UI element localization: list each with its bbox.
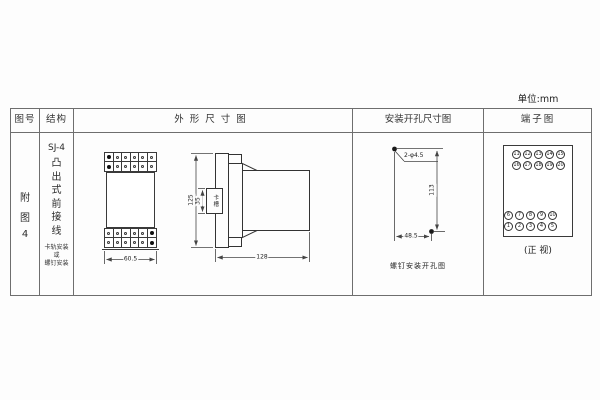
front-terminal-cell [131, 162, 140, 171]
mounting-caption: 螺钉安装开孔图 [353, 261, 483, 271]
terminal-caption: (正 视) [484, 243, 592, 256]
terminal-15: 15 [556, 150, 565, 159]
terminal-screw-dot [141, 241, 144, 244]
front-terminal-cell [148, 229, 157, 238]
front-terminal-cell [122, 153, 131, 162]
terminal-screw-dot [133, 232, 136, 235]
header-fig-no: 图号 [10, 108, 40, 132]
front-terminal-cell [131, 229, 140, 238]
terminal-5: 5 [548, 222, 557, 231]
mounting-note-line: 卡轨安装 [44, 244, 68, 252]
terminal-6: 6 [504, 211, 513, 220]
header-structure: 结构 [40, 108, 73, 132]
unit-label: 单位:mm [484, 91, 592, 106]
front-terminal-cell [114, 162, 123, 171]
front-terminal-cell [148, 153, 157, 162]
terminal-2: 2 [515, 222, 524, 231]
terminal-9: 9 [537, 211, 546, 220]
terminal-screw-dot [141, 156, 144, 159]
header-mounting: 安装开孔尺寸图 [353, 108, 483, 132]
front-terminal-cell [114, 238, 123, 247]
header-terminal: 端子图 [484, 108, 592, 132]
terminal-mark-dot [150, 231, 154, 235]
dim-horizontal-spacing: 48.5 [403, 233, 418, 240]
terminal-screw-dot [124, 241, 127, 244]
header-divider [10, 132, 592, 133]
terminal-screw-dot [133, 156, 136, 159]
terminal-screw-dot [150, 165, 153, 168]
header-outline: 外形尺寸图 [74, 108, 352, 132]
terminal-screw-dot [116, 232, 119, 235]
terminal-14: 14 [545, 150, 554, 159]
structure-char: 凸 [52, 157, 62, 171]
front-terminal-cell [148, 162, 157, 171]
dim-holes-label: 2-φ4.5 [404, 153, 423, 160]
terminal-screw-dot [116, 156, 119, 159]
mounting-note-line: 或 [44, 252, 68, 260]
front-terminal-cell [105, 238, 114, 247]
terminal-screw-dot [124, 232, 127, 235]
terminal-11: 11 [512, 150, 521, 159]
model-label: SJ-4 [48, 143, 65, 153]
terminal-screw-dot [150, 156, 153, 159]
terminal-1: 1 [504, 222, 513, 231]
terminal-mark-dot [107, 155, 111, 159]
fig-no-cell: 附 图 4 [10, 132, 40, 296]
front-terminal-cell [105, 153, 114, 162]
front-terminal-cell [105, 229, 114, 238]
dim-slot-height: 35 [196, 196, 203, 206]
front-terminal-cell [139, 238, 148, 247]
structure-cell: SJ-4 凸 出 式 前 接 线 卡轨安装 或 螺钉安装 [40, 132, 73, 296]
terminal-screw-dot [133, 165, 136, 168]
structure-char: 前 [52, 198, 62, 212]
front-terminal-cell [122, 238, 131, 247]
front-terminal-cell [122, 229, 131, 238]
structure-char: 接 [52, 211, 62, 225]
dim-overall-depth: 128 [255, 254, 268, 261]
structure-char: 线 [52, 225, 62, 239]
front-terminal-cell [131, 238, 140, 247]
terminal-4: 4 [537, 222, 546, 231]
column-divider-4 [483, 108, 484, 296]
front-terminal-cell [139, 162, 148, 171]
terminal-12: 12 [523, 150, 532, 159]
front-view-body [106, 172, 155, 228]
terminal-screw-dot [107, 232, 110, 235]
fig-no-char: 附 [20, 189, 30, 204]
terminal-17: 17 [523, 161, 532, 170]
front-terminal-cell [131, 153, 140, 162]
terminal-18: 18 [534, 161, 543, 170]
terminal-screw-dot [116, 241, 119, 244]
structure-char: 式 [52, 184, 62, 198]
terminal-19: 19 [545, 161, 554, 170]
slot-label: 卡槽 [212, 194, 218, 207]
datasheet-page: 单位:mm 图号 结构 外形尺寸图 安装开孔尺寸图 端子图 附 图 4 SJ-4… [0, 0, 600, 400]
terminal-mark-dot [150, 241, 154, 245]
front-terminal-cell [114, 153, 123, 162]
terminal-3: 3 [526, 222, 535, 231]
terminal-8: 8 [526, 211, 535, 220]
front-terminal-cell [139, 153, 148, 162]
terminal-screw-dot [107, 241, 110, 244]
dim-front-width: 60.5 [123, 256, 138, 263]
terminal-group-top: 11121314151617181920 [512, 150, 568, 171]
terminal-screw-dot [116, 165, 119, 168]
front-terminal-block-bottom [104, 228, 157, 248]
terminal-screw-dot [141, 232, 144, 235]
terminal-screw-dot [124, 165, 127, 168]
front-terminal-cell [122, 162, 131, 171]
front-view-base-line [102, 249, 159, 250]
terminal-20: 20 [556, 161, 565, 170]
mounting-note: 卡轨安装 或 螺钉安装 [44, 244, 68, 268]
terminal-group-bottom: 67891012345 [504, 211, 560, 232]
terminal-13: 13 [534, 150, 543, 159]
front-terminal-cell [139, 229, 148, 238]
terminal-7: 7 [515, 211, 524, 220]
terminal-10: 10 [548, 211, 557, 220]
terminal-screw-dot [133, 241, 136, 244]
fig-no-char: 图 [20, 209, 30, 224]
front-terminal-block-top [104, 152, 157, 172]
terminal-screw-dot [141, 165, 144, 168]
fig-no-char: 4 [22, 229, 28, 240]
front-terminal-cell [105, 162, 114, 171]
front-terminal-cell [114, 229, 123, 238]
terminal-16: 16 [512, 161, 521, 170]
dim-vertical-spacing: 113 [429, 183, 436, 196]
terminal-mark-dot [107, 165, 111, 169]
mounting-note-line: 螺钉安装 [44, 260, 68, 268]
column-divider-2 [73, 108, 74, 296]
front-terminal-cell [148, 238, 157, 247]
terminal-screw-dot [124, 156, 127, 159]
structure-char: 出 [52, 171, 62, 185]
